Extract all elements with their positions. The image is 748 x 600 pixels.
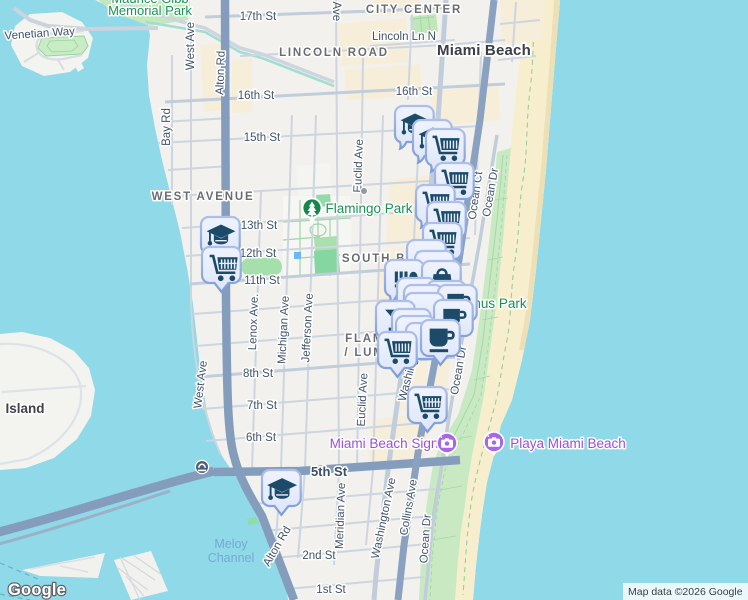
svg-text:2nd St: 2nd St (302, 550, 336, 562)
svg-text:Lincoln Ln N: Lincoln Ln N (372, 31, 436, 43)
svg-text:8th St: 8th St (243, 368, 274, 380)
svg-text:11th St: 11th St (244, 275, 280, 287)
svg-text:LINCOLN ROAD: LINCOLN ROAD (279, 47, 389, 59)
svg-text:Miami Beach: Miami Beach (437, 42, 531, 59)
svg-text:7th St: 7th St (247, 400, 278, 412)
svg-text:6th St: 6th St (246, 432, 277, 444)
svg-text:Meridian Ave: Meridian Ave (330, 0, 342, 21)
svg-text:Memorial Park: Memorial Park (108, 3, 192, 18)
svg-text:15th St: 15th St (244, 132, 281, 144)
svg-text:WEST AVENUE: WEST AVENUE (152, 191, 255, 203)
svg-text:Flamingo Park: Flamingo Park (325, 201, 412, 216)
svg-text:Channel: Channel (208, 551, 255, 565)
svg-text:Meridian Ave: Meridian Ave (334, 483, 348, 550)
svg-text:Meloy: Meloy (214, 537, 248, 551)
svg-text:Lenox Ave.: Lenox Ave. (247, 293, 261, 350)
svg-text:Playa Miami Beach: Playa Miami Beach (510, 436, 626, 451)
svg-text:17th St: 17th St (240, 11, 277, 23)
svg-text:Island: Island (5, 401, 44, 416)
svg-text:CITY CENTER: CITY CENTER (366, 4, 462, 16)
svg-text:Google: Google (8, 581, 66, 599)
svg-text:16th St: 16th St (238, 90, 275, 102)
svg-text:5th St: 5th St (311, 464, 348, 479)
svg-text:West Ave: West Ave (185, 22, 197, 70)
svg-text:12th St: 12th St (240, 248, 277, 260)
svg-text:Euclid Ave: Euclid Ave (352, 139, 366, 193)
svg-text:Alton Rd: Alton Rd (214, 51, 228, 96)
svg-text:Map data ©2026 Google: Map data ©2026 Google (628, 586, 743, 598)
svg-text:13th St: 13th St (241, 220, 278, 232)
svg-text:Miami Beach Sign: Miami Beach Sign (330, 436, 439, 451)
svg-text:1st St: 1st St (316, 584, 346, 596)
svg-text:16th St: 16th St (396, 86, 433, 98)
svg-text:Bay Rd: Bay Rd (161, 108, 173, 146)
